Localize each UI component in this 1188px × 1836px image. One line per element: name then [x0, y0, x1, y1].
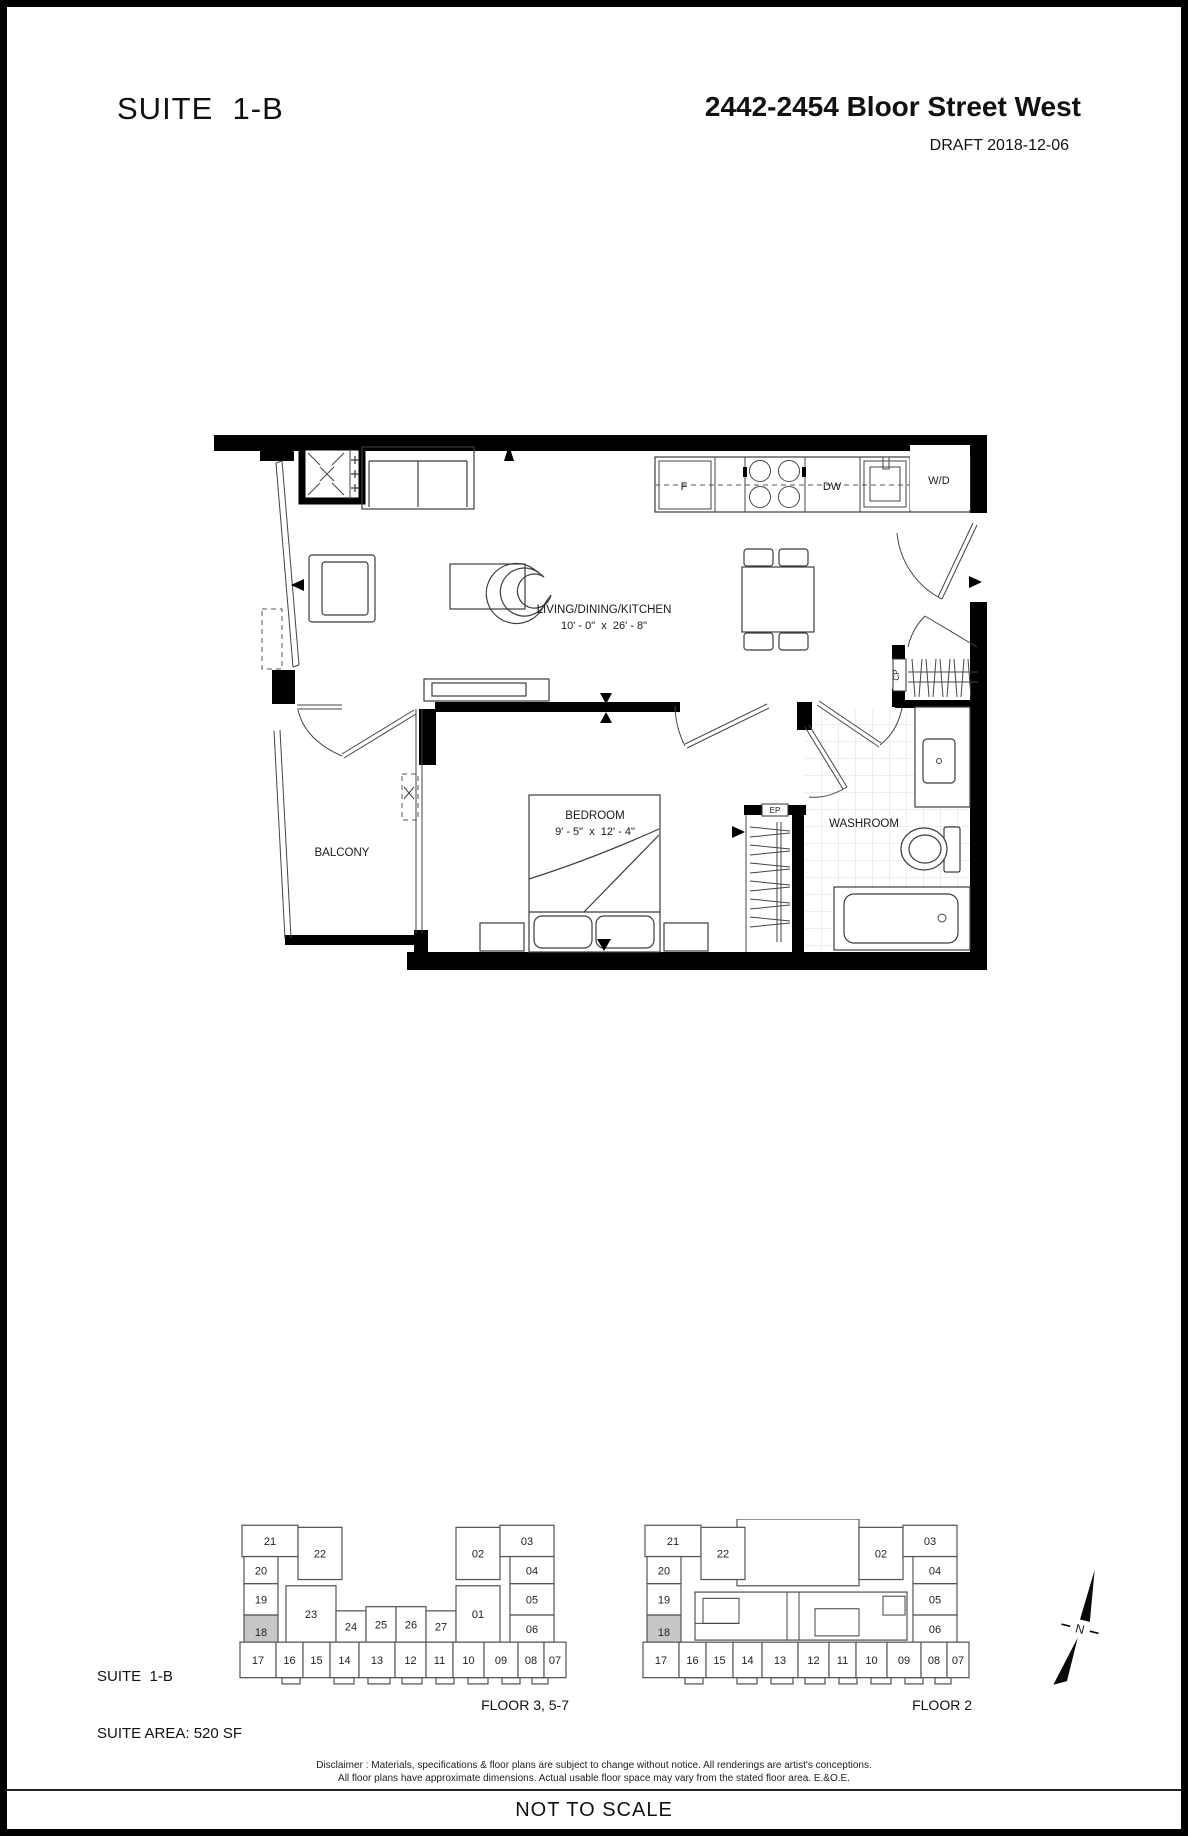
keyplan-unit-label: 26 — [405, 1619, 417, 1631]
keyplan-unit-label: 06 — [929, 1624, 941, 1636]
nightstand-icon — [664, 923, 708, 951]
sofa-icon — [362, 447, 474, 509]
keyplan-unit-label: 19 — [255, 1594, 267, 1606]
keyplan-unit-label: 10 — [865, 1655, 877, 1667]
keyplan-unit-label: 22 — [314, 1548, 326, 1560]
utility-box — [302, 447, 362, 501]
keyplan-unit-label: 17 — [252, 1655, 264, 1667]
keyplan-unit-label: 16 — [686, 1655, 698, 1667]
room-label-bedroom: BEDROOM — [565, 810, 624, 822]
marker-up-icon — [600, 712, 612, 723]
kitchen: F DW W/D — [655, 445, 970, 512]
keyplan-unit-label: 18 — [658, 1627, 670, 1639]
keyplan-unit-label: 15 — [310, 1655, 322, 1667]
room-dims-living: 10' - 0" x 26' - 8" — [561, 620, 647, 632]
keyplan-unit-label: 06 — [526, 1624, 538, 1636]
keyplan-unit-label: 20 — [255, 1565, 267, 1577]
washer-dryer-label: W/D — [928, 475, 949, 487]
disclaimer-line2: All floor plans have approximate dimensi… — [7, 1772, 1181, 1785]
bedroom-furniture: EP — [480, 795, 790, 952]
keyplan-unit-label: 09 — [898, 1655, 910, 1667]
keyplan-floor-2: 2122201918020304050617161514131211100908… — [637, 1519, 972, 1686]
keyplan-caption-floor357: FLOOR 3, 5-7 — [234, 1697, 569, 1713]
page-title: SUITE 1-B — [117, 91, 284, 127]
keyplan-cells: 2122201918232425262702030104050617161514… — [240, 1525, 566, 1677]
suite-info-area: SUITE AREA: 520 SF — [97, 1724, 242, 1743]
footer-note: NOT TO SCALE — [7, 1789, 1181, 1829]
keyplan-caption-floor2: FLOOR 2 — [637, 1697, 972, 1713]
electrical-panel-label: EP — [770, 806, 781, 815]
keyplan-unit-label: 10 — [462, 1655, 474, 1667]
room-label-washroom: WASHROOM — [829, 818, 899, 830]
keyplan-unit-label: 23 — [305, 1609, 317, 1621]
keyplan-unit-label: 03 — [924, 1536, 936, 1548]
keyplan-unit-label: 02 — [472, 1548, 484, 1560]
keyplan-unit-label: 18 — [255, 1627, 267, 1639]
north-label: N — [1074, 1621, 1086, 1637]
marker-down-icon — [597, 939, 611, 951]
room-label-living: LIVING/DINING/KITCHEN — [537, 604, 672, 616]
keyplan-unit-label: 16 — [283, 1655, 295, 1667]
dishwasher-label: DW — [823, 481, 842, 493]
keyplan-unit-label: 12 — [807, 1655, 819, 1667]
keyplan-unit-label: 11 — [837, 1655, 848, 1667]
draft-date: DRAFT 2018-12-06 — [930, 137, 1069, 155]
marker-right-icon — [732, 826, 745, 838]
fridge-label: F — [681, 481, 688, 493]
keyplan-unit-label: 08 — [525, 1655, 537, 1667]
keyplan-unit-label: 07 — [549, 1655, 561, 1667]
keyplan-unit-label: 25 — [375, 1619, 387, 1631]
toilet-icon — [901, 827, 960, 872]
hangers-icon — [750, 827, 790, 927]
vanity-sink-icon — [915, 707, 970, 807]
coat-closet-label: CP — [892, 669, 901, 680]
north-arrow-icon: N — [1035, 1559, 1125, 1694]
keyplan-unit-label: 05 — [929, 1594, 941, 1606]
keyplan-unit-label: 13 — [371, 1655, 383, 1667]
building-address: 2442-2454 Bloor Street West — [705, 91, 1081, 123]
hangers-icon — [912, 659, 971, 697]
floor-plan: F DW W/D — [192, 367, 992, 977]
keyplan-unit-label: 19 — [658, 1594, 670, 1606]
keyplan-unit-label: 13 — [774, 1655, 786, 1667]
dining-set-icon — [742, 549, 814, 650]
keyplan-unit-label: 02 — [875, 1548, 887, 1560]
keyplan-unit-label: 24 — [345, 1621, 357, 1633]
bathtub-icon — [834, 887, 970, 950]
keyplan-unit-label: 04 — [526, 1565, 538, 1577]
keyplan-unit-label: 15 — [713, 1655, 725, 1667]
keyplan-floor-3-5-7: 2122201918232425262702030104050617161514… — [234, 1519, 569, 1686]
armchair-icon — [309, 555, 375, 622]
keyplan-unit-label: 04 — [929, 1565, 941, 1577]
keyplan-unit-label: 05 — [526, 1594, 538, 1606]
keyplan-unit-label: 12 — [404, 1655, 416, 1667]
nightstand-icon — [480, 923, 524, 951]
keyplan-unit-label: 17 — [655, 1655, 667, 1667]
floor-plan-sheet: SUITE 1-B 2442-2454 Bloor Street West DR… — [0, 0, 1188, 1836]
bedroom-closet: EP — [746, 804, 790, 952]
keyplan-unit-label: 03 — [521, 1536, 533, 1548]
keyplan-unit-label: 22 — [717, 1548, 729, 1560]
coat-closet: CP — [892, 659, 978, 697]
tv-console-icon — [424, 679, 549, 701]
keyplan-unit-label: 07 — [952, 1655, 964, 1667]
keyplan-unit-label: 01 — [472, 1609, 484, 1621]
keyplan-unit-label: 11 — [434, 1655, 445, 1667]
keyplan-notches — [282, 1678, 548, 1684]
room-dims-bedroom: 9' - 5" x 12' - 4" — [555, 826, 635, 838]
keyplan-unit-label: 08 — [928, 1655, 940, 1667]
disclaimer: Disclaimer : Materials, specifications &… — [7, 1759, 1181, 1785]
keyplan-unit-label: 14 — [741, 1655, 753, 1667]
disclaimer-line1: Disclaimer : Materials, specifications &… — [7, 1759, 1181, 1772]
keyplan-unit-label: 14 — [338, 1655, 350, 1667]
keyplan-unit-label: 20 — [658, 1565, 670, 1577]
suite-info-name: SUITE 1-B — [97, 1667, 242, 1686]
keyplan-unit-label: 09 — [495, 1655, 507, 1667]
room-label-balcony: BALCONY — [315, 847, 370, 859]
keyplan-notches — [685, 1678, 951, 1684]
keyplan-unit-label: 21 — [667, 1536, 679, 1548]
keyplan-unit-label: 21 — [264, 1536, 276, 1548]
keyplan-unit-label: 27 — [435, 1621, 447, 1633]
marker-right-icon — [969, 576, 982, 588]
